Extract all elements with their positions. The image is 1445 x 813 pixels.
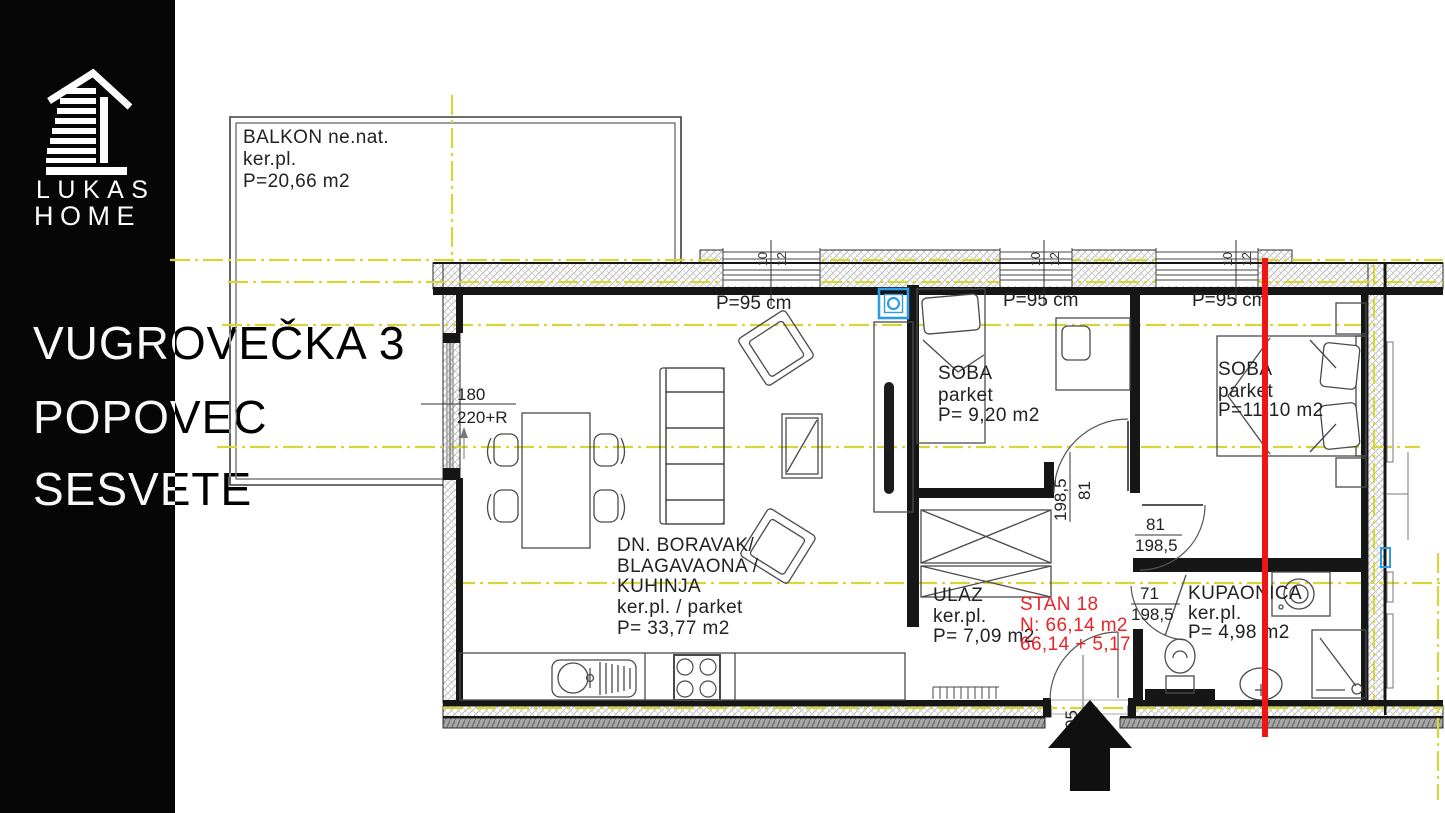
svg-text:ker.pl.: ker.pl. [243,149,297,170]
dining-table [488,413,625,548]
window1-sill-label: P=95 cm [716,293,792,314]
room-label-bathroom: KUPAONICA ker.pl. P= 4,98 m2 [1188,583,1302,643]
svg-text:ker.pl. / parket: ker.pl. / parket [617,597,743,618]
wall-bedroom1-hall [919,488,1051,498]
entrance-jamb-left [1043,698,1051,717]
window1-mini-label-a: 10 [756,252,770,266]
window2-mini-label-a: 10 [1029,252,1043,266]
svg-text:ker.pl.: ker.pl. [1188,603,1242,624]
svg-text:DN. BORAVAK/: DN. BORAVAK/ [617,535,754,556]
svg-text:P=11,10 m2: P=11,10 m2 [1218,400,1324,421]
svg-text:220+R: 220+R [457,408,508,427]
bath-sink [1240,668,1282,700]
window3-sill-label: P=95 cm [1192,290,1268,311]
svg-text:P= 33,77 m2: P= 33,77 m2 [617,618,730,639]
unit-net-area: N: 66,14 m2 [1020,615,1128,636]
svg-text:SOBA: SOBA [938,363,992,384]
svg-text:BLAGAVAONA /: BLAGAVAONA / [617,556,759,577]
svg-text:P=20,66 m2: P=20,66 m2 [243,171,350,192]
svg-text:198,5: 198,5 [1135,536,1178,555]
unit-total-area: 66,14 + 5,17 [1020,634,1131,655]
window2-mini-label-b: 12 [1048,252,1062,266]
axis-lines [170,95,1443,800]
stove [674,655,720,700]
kitchen-sink [552,660,636,697]
dim-bathroom-door: 71 198,5 [1131,584,1180,624]
svg-text:KUPAONICA: KUPAONICA [1188,583,1302,604]
svg-text:ker.pl.: ker.pl. [933,606,987,627]
dimension-labels: 180 220+R 81 198,5 81 198,5 71 198,5 [421,385,1182,729]
svg-text:81: 81 [1075,481,1094,500]
window1-mini-label-b: 12 [775,252,789,266]
room-labels: BALKON ne.nat. ker.pl. P=20,66 m2 DN. BO… [243,127,1324,655]
bathroom-step [1145,689,1215,703]
svg-text:180: 180 [457,385,485,404]
red-marker-line [1262,258,1268,737]
window3-mini-label-a: 10 [1221,252,1235,266]
armchair-top [737,309,814,386]
svg-text:71: 71 [1140,584,1159,603]
room-label-bedroom2: SOBA parket P=11,10 m2 [1218,359,1324,421]
dim-arrow-icon [460,427,468,438]
kitchen-counter [460,653,905,700]
wall-hall-bathroom [1133,629,1143,703]
desk [1056,318,1130,390]
window2-sill-label: P=95 cm [1003,290,1079,311]
neighbour-fragments [1387,342,1408,688]
tv-icon [884,382,894,494]
room-label-bedroom1: SOBA parket P= 9,20 m2 [938,363,1040,426]
shower [1312,630,1366,698]
svg-text:parket: parket [938,385,994,406]
room-label-living: DN. BORAVAK/ BLAGAVAONA / KUHINJA ker.pl… [617,535,759,639]
toilet [1165,639,1195,693]
unit-number: STAN 18 [1020,594,1098,615]
unit-info-label: STAN 18 N: 66,14 m2 66,14 + 5,17 [1020,594,1131,655]
svg-text:P= 9,20 m2: P= 9,20 m2 [938,405,1040,426]
logo-building-icon [46,88,127,175]
wall-bedroom2-bathroom [1133,558,1366,572]
svg-text:P= 4,98 m2: P= 4,98 m2 [1188,622,1290,643]
exterior-strip [443,718,1045,728]
dim-bedroom2-door: 81 198,5 [1135,515,1182,555]
svg-text:198,5: 198,5 [1131,605,1174,624]
radiator-icon [933,687,999,699]
lukas-home-logo-icon [0,0,175,240]
window3-mini-label-b: 12 [1240,252,1254,266]
svg-text:KUHINJA: KUHINJA [617,576,701,597]
dim-bedroom1-door: 81 198,5 [1051,452,1094,522]
svg-text:198,5: 198,5 [1051,478,1070,521]
svg-text:81: 81 [1146,515,1165,534]
svg-text:BALKON ne.nat.: BALKON ne.nat. [243,127,389,148]
dim-balcony-door: 180 220+R [421,385,516,459]
project-title-line3: SESVETE [33,462,252,516]
project-title-line2: POPOVEC [33,390,268,444]
wall-bedroom1-bedroom2 [1130,290,1140,493]
svg-text:ULAZ: ULAZ [933,585,983,606]
room-label-balcony: BALKON ne.nat. ker.pl. P=20,66 m2 [243,127,389,192]
floorplan-page: LUKAS HOME [0,0,1445,813]
project-title-line1: VUGROVEČKA 3 [33,316,405,370]
